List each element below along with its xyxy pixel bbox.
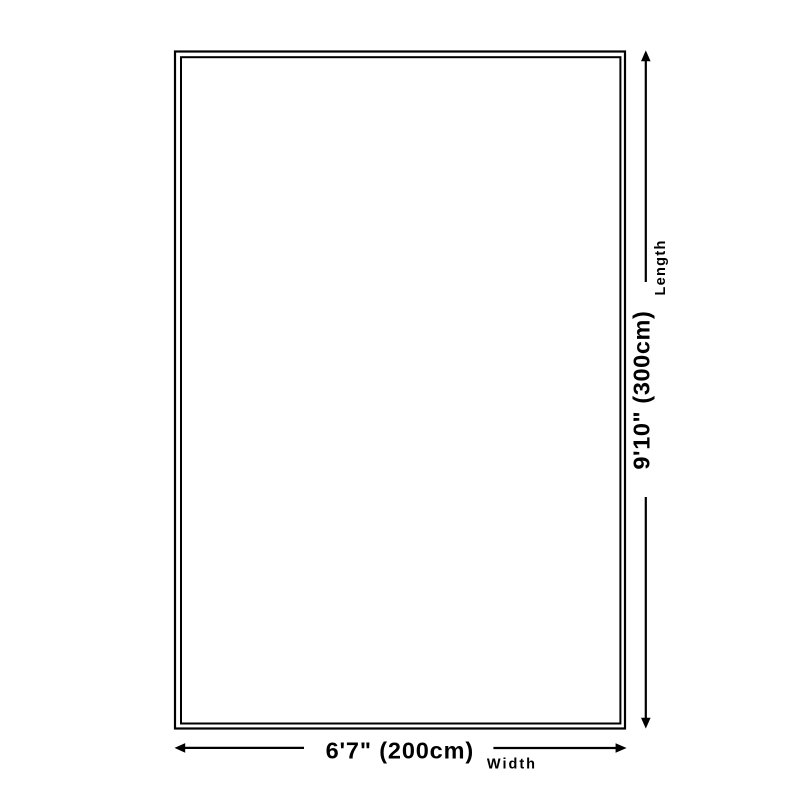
svg-text:Width: Width (487, 757, 537, 773)
svg-text:9'10" (300cm): 9'10" (300cm) (628, 311, 654, 470)
svg-text:Length: Length (653, 239, 669, 295)
svg-text:6'7" (200cm): 6'7" (200cm) (326, 738, 474, 764)
